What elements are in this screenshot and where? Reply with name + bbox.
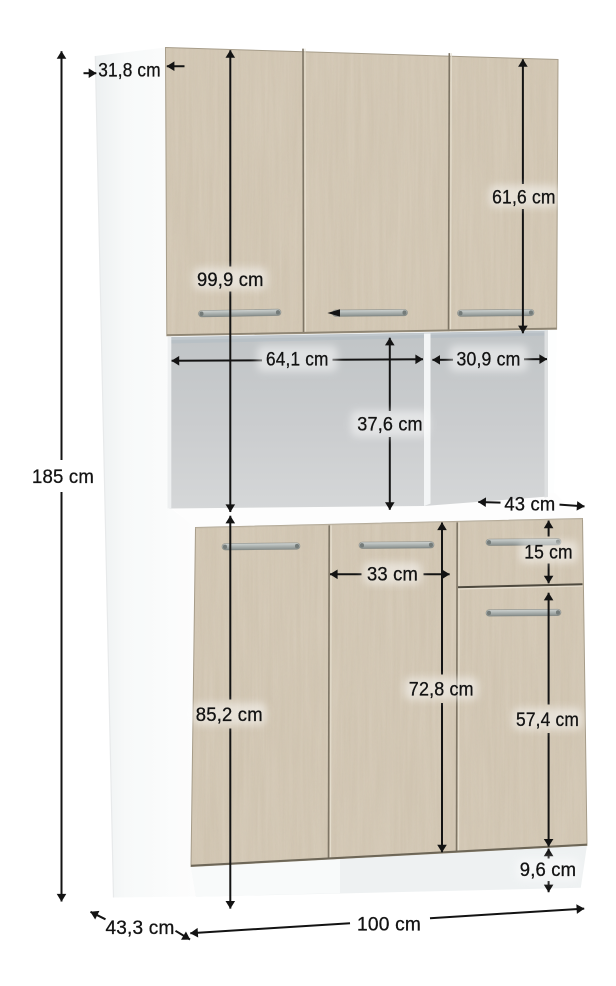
svg-text:57,4 cm: 57,4 cm (516, 710, 579, 731)
svg-text:85,2 cm: 85,2 cm (196, 705, 263, 726)
svg-text:15 cm: 15 cm (524, 543, 573, 564)
svg-text:33 cm: 33 cm (367, 564, 418, 585)
svg-text:37,6 cm: 37,6 cm (357, 415, 423, 436)
svg-text:31,8 cm: 31,8 cm (98, 61, 161, 82)
svg-text:72,8 cm: 72,8 cm (409, 680, 474, 701)
svg-text:30,9 cm: 30,9 cm (457, 349, 521, 370)
svg-text:99,9 cm: 99,9 cm (197, 270, 264, 291)
svg-text:43 cm: 43 cm (504, 494, 555, 515)
svg-text:100 cm: 100 cm (357, 914, 421, 935)
svg-text:185 cm: 185 cm (32, 467, 94, 488)
svg-text:43,3 cm: 43,3 cm (106, 918, 175, 939)
svg-text:9,6 cm: 9,6 cm (520, 860, 577, 881)
svg-text:61,6 cm: 61,6 cm (492, 187, 556, 208)
svg-text:64,1 cm: 64,1 cm (266, 350, 329, 371)
